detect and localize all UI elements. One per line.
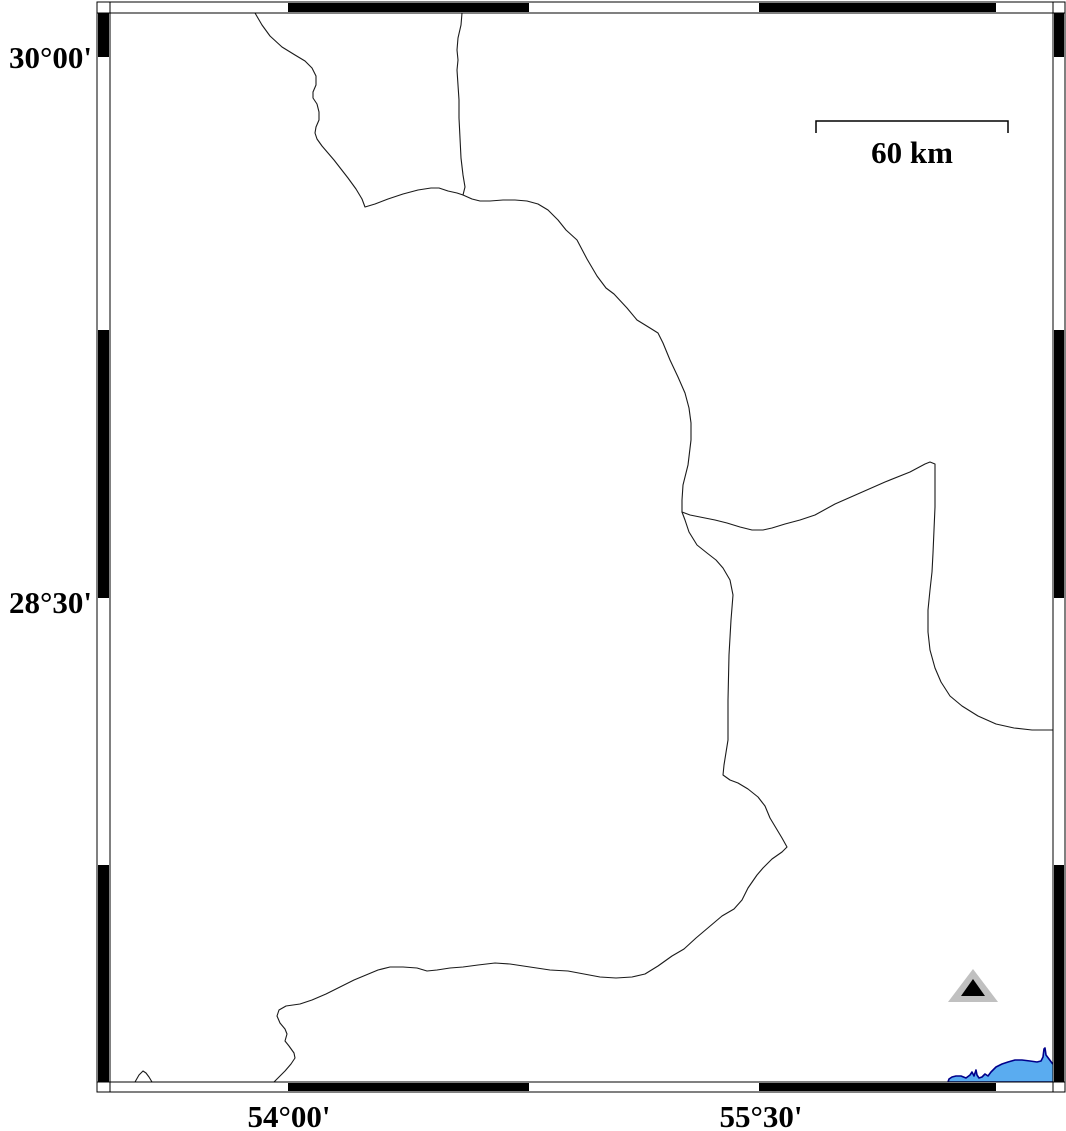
boundary-south-boundary [274, 512, 787, 1082]
boundary-east-boundary [682, 462, 1053, 730]
frame-black-segment-right [1054, 330, 1064, 598]
scale-bar-label: 60 km [871, 137, 953, 168]
scale-bar-bracket [816, 121, 1008, 133]
lon-label-55-30: 55°30' [719, 1101, 802, 1131]
frame-black-segment-left [98, 13, 109, 57]
boundary-north-vertical-boundary [457, 13, 465, 195]
frame-black-segment-top [288, 3, 529, 12]
frame-black-segment-left [98, 330, 109, 598]
lon-label-54-00: 54°00' [247, 1101, 330, 1131]
boundary-northwest-zigzag-boundary [255, 13, 463, 207]
frame-black-segment-right [1054, 13, 1064, 57]
frame-black-segment-top [759, 3, 996, 12]
frame-black-segment-left [98, 865, 109, 1082]
map-canvas: 30°00' 28°30' 54°00' 55°30' 60 km [0, 0, 1066, 1131]
frame-black-segment-bottom [288, 1083, 529, 1091]
lat-label-30-00: 30°00' [0, 42, 92, 73]
lat-label-28-30: 28°30' [0, 587, 92, 618]
frame-black-segment-bottom [759, 1083, 996, 1091]
boundary-small-bump-bottom-left [135, 1071, 152, 1082]
lake-bottom-right [948, 1048, 1056, 1082]
boundary-central-spine-boundary [463, 195, 691, 512]
frame-black-segment-right [1054, 865, 1064, 1082]
